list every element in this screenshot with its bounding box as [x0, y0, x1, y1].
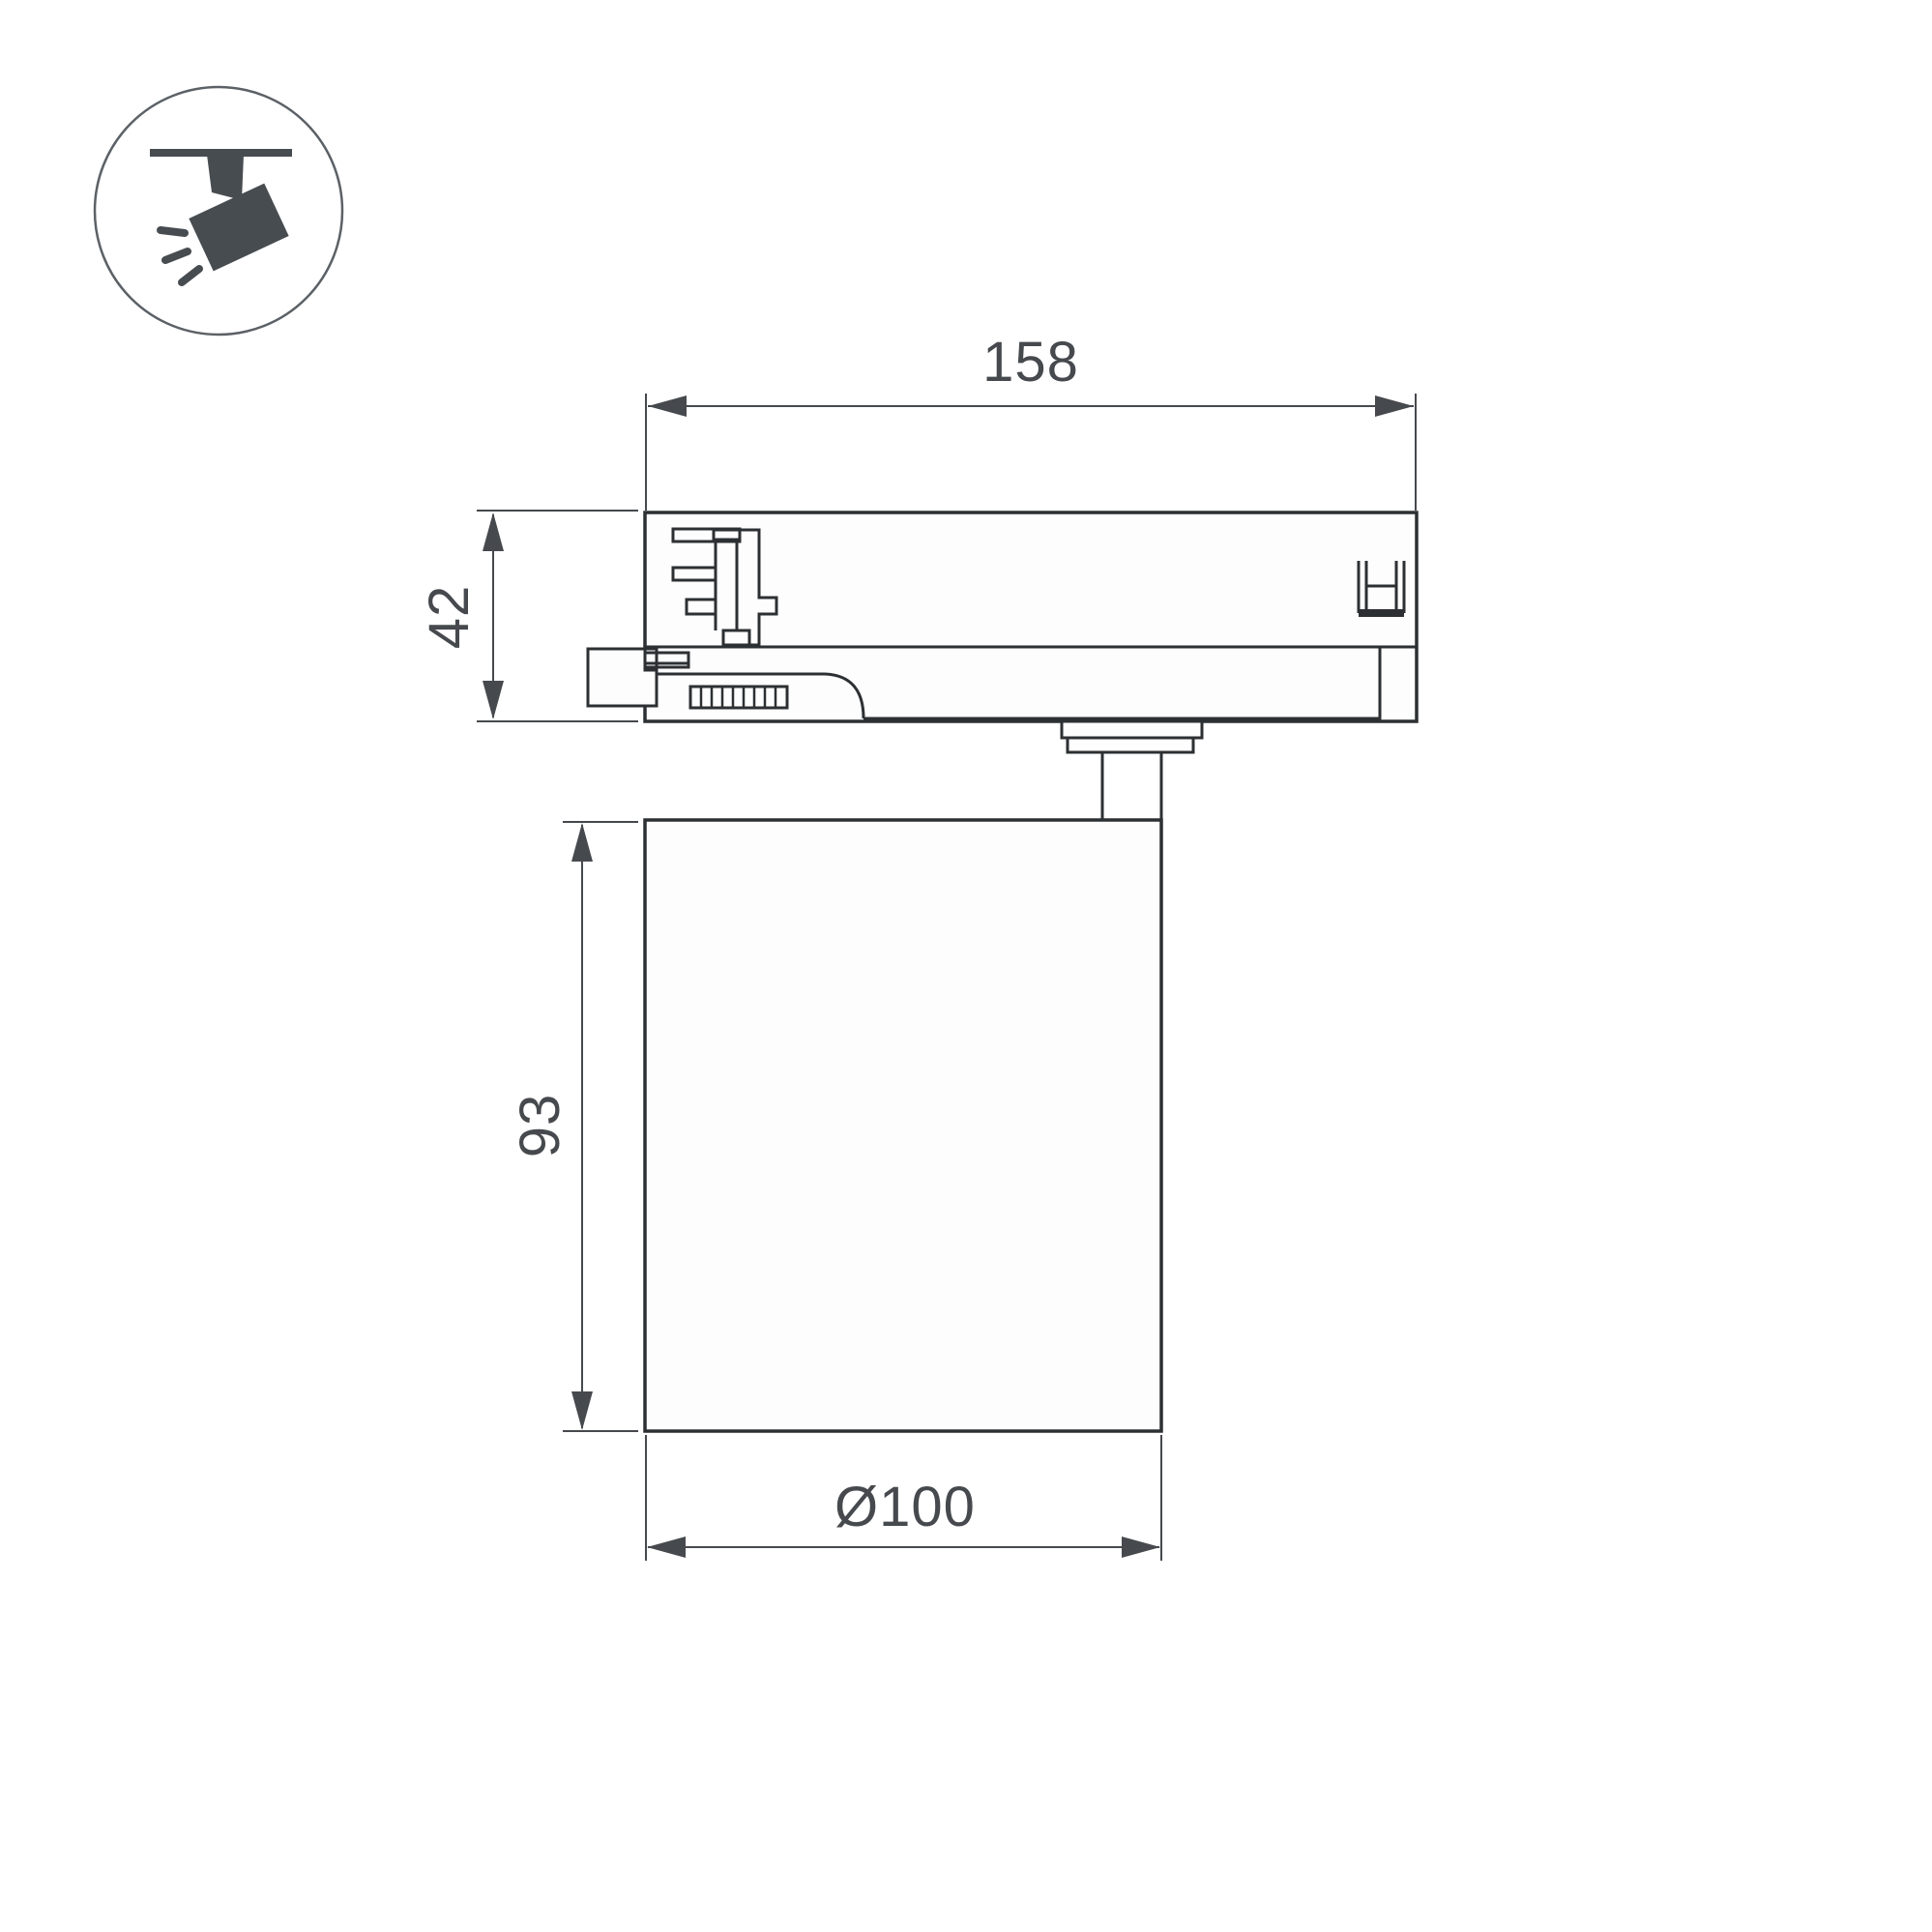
dim-body-diameter: Ø100	[646, 1435, 1161, 1561]
part-layer	[588, 512, 1417, 1431]
mount-stem	[1102, 752, 1161, 820]
dim-158-arrow-right	[1375, 395, 1414, 417]
dim-100-arrow-right	[1122, 1537, 1160, 1558]
dim-93-arrow-bottom	[571, 1391, 593, 1430]
track-adapter-body	[645, 512, 1417, 721]
dim-158-arrow-left	[648, 395, 687, 417]
dim-100-label: Ø100	[834, 1476, 976, 1538]
dim-93-label: 93	[509, 1094, 571, 1158]
dim-158-label: 158	[982, 331, 1079, 394]
clip-bottom-bar	[1359, 609, 1404, 617]
dim-42-arrow-bottom	[483, 681, 504, 719]
dim-93-extension-lines	[563, 822, 638, 1431]
flange-upper	[1062, 721, 1202, 738]
dim-adapter-width: 158	[646, 331, 1416, 511]
dim-158-extension-lines	[646, 394, 1416, 511]
dim-42-arrow-top	[483, 512, 504, 551]
lamp-body	[645, 820, 1161, 1431]
dim-body-height: 93	[509, 822, 638, 1431]
orientation-icon	[95, 87, 342, 335]
dim-42-label: 42	[418, 585, 481, 650]
track-light-dimension-drawing: 158 42 93 Ø100	[0, 0, 1932, 1932]
dim-100-arrow-left	[647, 1537, 686, 1558]
dim-93-arrow-top	[571, 823, 593, 862]
flange-lower	[1068, 738, 1193, 752]
mount-flange	[1062, 721, 1202, 752]
technical-drawing-page: 158 42 93 Ø100	[0, 0, 1932, 1932]
